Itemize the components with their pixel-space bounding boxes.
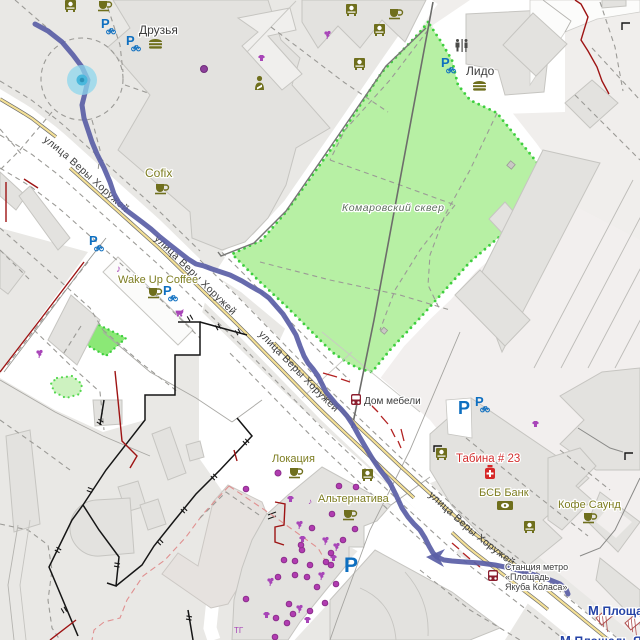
svg-text:Станция метро: Станция метро: [505, 562, 568, 572]
svg-text:Альтернатива: Альтернатива: [318, 493, 390, 505]
svg-text:P: P: [475, 394, 484, 409]
svg-text:Лидо: Лидо: [466, 64, 495, 78]
svg-text:Якуба Коласа»: Якуба Коласа»: [505, 582, 567, 592]
svg-text:♪: ♪: [308, 497, 312, 506]
svg-text:ТГ: ТГ: [234, 626, 244, 635]
svg-text:P: P: [344, 554, 358, 577]
svg-text:P: P: [441, 55, 450, 70]
svg-text:P: P: [101, 16, 110, 31]
svg-text:М Площадь Я: М Площадь Я: [588, 603, 640, 618]
svg-text:P: P: [89, 233, 98, 248]
svg-text:М Площадь Я: М Площадь Я: [560, 633, 640, 640]
svg-text:Cofix: Cofix: [145, 166, 172, 180]
svg-text:Друзья: Друзья: [139, 23, 178, 37]
svg-text:Дом мебели: Дом мебели: [364, 395, 421, 407]
svg-text:«Площадь: «Площадь: [505, 572, 549, 582]
svg-text:Wake Up Coffee: Wake Up Coffee: [118, 274, 198, 286]
svg-text:БСБ Банк: БСБ Банк: [479, 487, 529, 499]
svg-text:P: P: [126, 33, 135, 48]
svg-text:Комаровский сквер: Комаровский сквер: [342, 202, 444, 214]
svg-text:Табина # 23: Табина # 23: [456, 453, 520, 465]
svg-text:Локация: Локация: [272, 453, 315, 465]
svg-text:Кофе Саунд: Кофе Саунд: [558, 499, 621, 511]
svg-text:P: P: [458, 398, 470, 418]
